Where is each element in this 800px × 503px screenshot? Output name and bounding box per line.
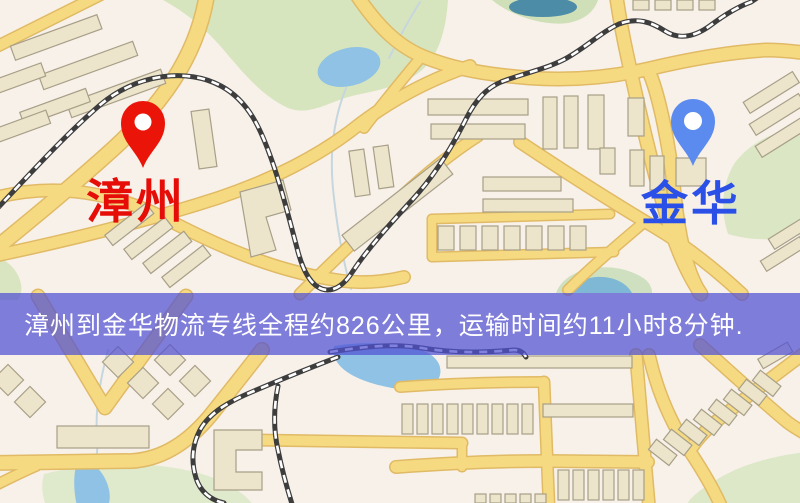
map-image: 漳州 金华 漳州到金华物流专线全程约826公里，运输时间约11小时8分钟. [0,0,800,503]
origin-pin-icon [121,101,165,168]
destination-pin-icon [671,99,715,166]
route-info-banner: 漳州到金华物流专线全程约826公里，运输时间约11小时8分钟. [0,293,800,355]
route-info-text: 漳州到金华物流专线全程约826公里，运输时间约11小时8分钟. [24,306,744,342]
destination-label: 金华 [640,177,741,232]
origin-label: 漳州 [86,175,186,230]
map-canvas: 漳州 金华 [0,0,800,503]
